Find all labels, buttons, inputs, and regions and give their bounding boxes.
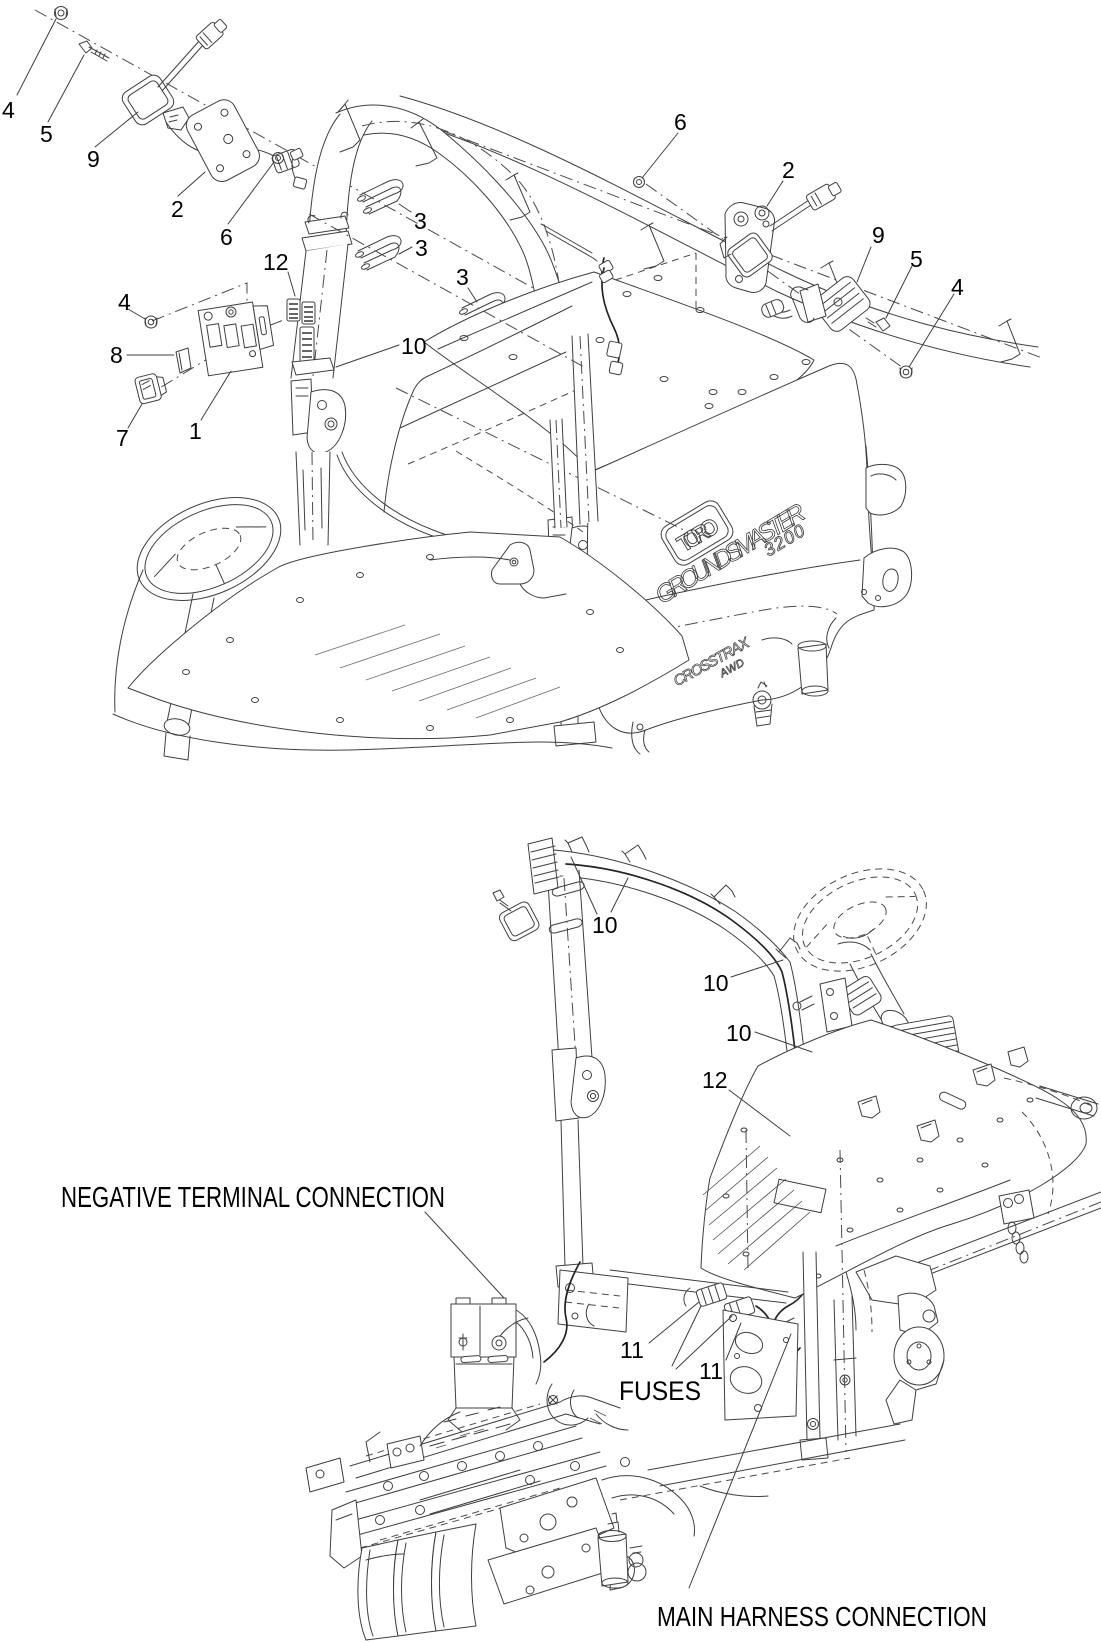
svg-text:11: 11 bbox=[699, 1358, 723, 1384]
svg-text:2: 2 bbox=[782, 157, 795, 183]
svg-text:10: 10 bbox=[726, 1020, 752, 1046]
svg-text:FUSES: FUSES bbox=[619, 1376, 701, 1406]
svg-text:9: 9 bbox=[87, 146, 100, 172]
svg-text:2: 2 bbox=[171, 196, 184, 222]
svg-text:3: 3 bbox=[414, 208, 427, 234]
svg-text:3: 3 bbox=[415, 235, 428, 261]
svg-text:11: 11 bbox=[620, 1337, 644, 1363]
svg-text:10: 10 bbox=[703, 970, 729, 996]
svg-text:12: 12 bbox=[263, 249, 289, 275]
svg-text:NEGATIVE TERMINAL CONNECTION: NEGATIVE TERMINAL CONNECTION bbox=[61, 1182, 445, 1214]
svg-text:3: 3 bbox=[456, 264, 469, 290]
svg-text:MAIN HARNESS CONNECTION: MAIN HARNESS CONNECTION bbox=[657, 1601, 987, 1632]
svg-text:4: 4 bbox=[2, 97, 15, 123]
svg-text:4: 4 bbox=[951, 274, 964, 300]
svg-text:12: 12 bbox=[702, 1067, 728, 1093]
svg-text:1: 1 bbox=[189, 418, 202, 444]
svg-text:5: 5 bbox=[40, 121, 53, 147]
svg-text:5: 5 bbox=[910, 246, 923, 272]
svg-text:10: 10 bbox=[401, 333, 427, 359]
svg-text:6: 6 bbox=[674, 109, 687, 135]
svg-text:9: 9 bbox=[872, 222, 885, 248]
svg-text:7: 7 bbox=[116, 425, 129, 451]
svg-text:6: 6 bbox=[220, 224, 233, 250]
svg-text:10: 10 bbox=[592, 912, 618, 938]
svg-text:8: 8 bbox=[110, 342, 123, 368]
svg-text:4: 4 bbox=[118, 289, 131, 315]
